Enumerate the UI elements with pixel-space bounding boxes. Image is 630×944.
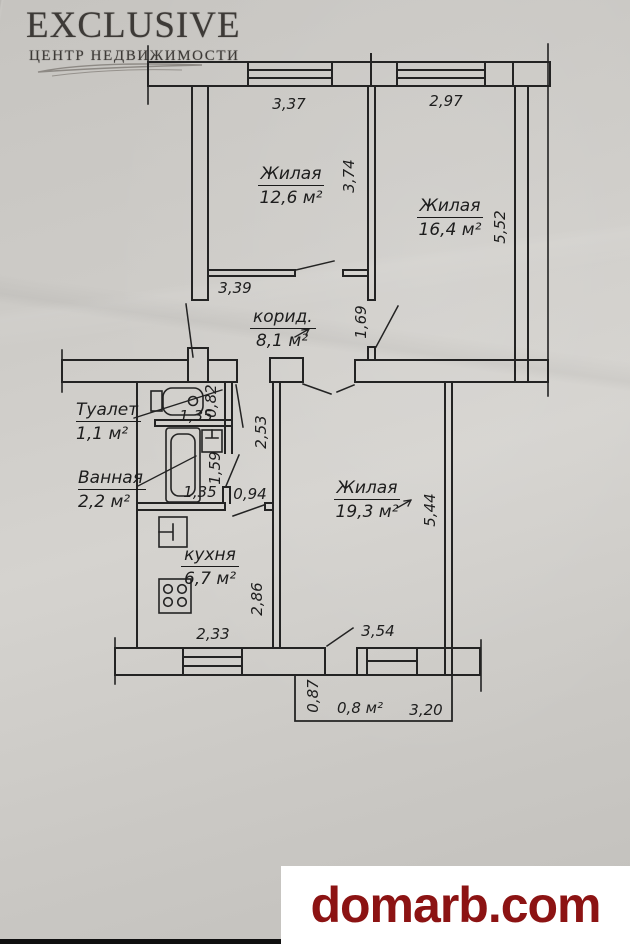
kitchen-sink-icon (159, 517, 187, 547)
wall-middle-horizontal (270, 358, 548, 382)
room-name: кухня (181, 545, 239, 567)
room-area: 8,1 м² (250, 331, 314, 351)
dimension-ticks (62, 44, 548, 691)
room-area: 2,2 м² (78, 492, 158, 512)
room-label-living1: Жилая 12,6 м² (243, 164, 339, 208)
dim-living1-depth: 3,74 (340, 150, 358, 202)
photo-edge-strip (0, 939, 281, 944)
dim-top-window-right: 2,97 (420, 92, 472, 110)
window-balcony-door (325, 648, 417, 675)
dim-kitchen-depth: 2,86 (248, 573, 266, 625)
room-area: 12,6 м² (243, 188, 339, 208)
dim-living1-width: 3,39 (209, 279, 261, 297)
room-label-kitchen: кухня 6,7 м² (174, 545, 246, 589)
wall-living3-right (445, 382, 452, 675)
window-top-right (397, 70, 485, 78)
room-area: 19,3 м² (332, 502, 402, 522)
dim-balcony-depth: 0,87 (304, 670, 322, 722)
room-name: Туалет (76, 400, 141, 422)
room-name: Жилая (417, 196, 484, 218)
room-name: Жилая (334, 478, 401, 500)
wall-right-upper (515, 86, 528, 382)
dim-bath-width: 1,35 (174, 483, 226, 501)
window-top-left (248, 70, 332, 78)
watermark: domarb.com (281, 866, 630, 944)
dim-hall-width: 0,94 (224, 485, 276, 503)
room-area: 6,7 м² (174, 569, 246, 589)
dim-hall-depth: 2,53 (252, 406, 270, 458)
watermark-text: domarb.com (310, 876, 600, 934)
dim-balcony-width: 3,20 (400, 701, 452, 719)
wall-living1-bottom (208, 270, 368, 276)
floor-plan: Жилая 12,6 м² Жилая 16,4 м² Жилая 19,3 м… (0, 0, 630, 944)
room-name: корид. (250, 307, 316, 329)
balcony-area-label: 0,8 м² (328, 699, 392, 717)
dim-living2-depth: 5,52 (491, 201, 509, 253)
wall-kitchen-living3 (273, 382, 280, 648)
room-name: Жилая (258, 164, 325, 186)
room-name: Ванная (78, 468, 146, 490)
bottom-exterior-wall (115, 648, 480, 675)
dim-living3-width: 3,54 (352, 622, 404, 640)
room-label-corridor: корид. 8,1 м² (250, 307, 314, 351)
room-area: 1,1 м² (76, 424, 156, 444)
room-label-living2: Жилая 16,4 м² (415, 196, 485, 240)
room-label-toilet: Туалет 1,1 м² (76, 400, 156, 444)
floorplan-photo: EXCLUSIVE ЦЕНТР НЕДВИЖИМОСТИ (0, 0, 630, 944)
room-label-living3: Жилая 19,3 м² (332, 478, 402, 522)
dim-living3-depth: 5,44 (421, 484, 439, 536)
dim-toilet-width: 1,35 (170, 407, 222, 425)
top-exterior-wall (148, 54, 550, 86)
room-label-bathroom: Ванная 2,2 м² (78, 468, 158, 512)
dim-top-window-left: 3,37 (263, 95, 315, 113)
dim-corridor-opening: 1,69 (352, 296, 370, 348)
room-area: 16,4 м² (415, 220, 485, 240)
dim-kitchen-width: 2,33 (187, 625, 239, 643)
window-kitchen (183, 648, 242, 675)
